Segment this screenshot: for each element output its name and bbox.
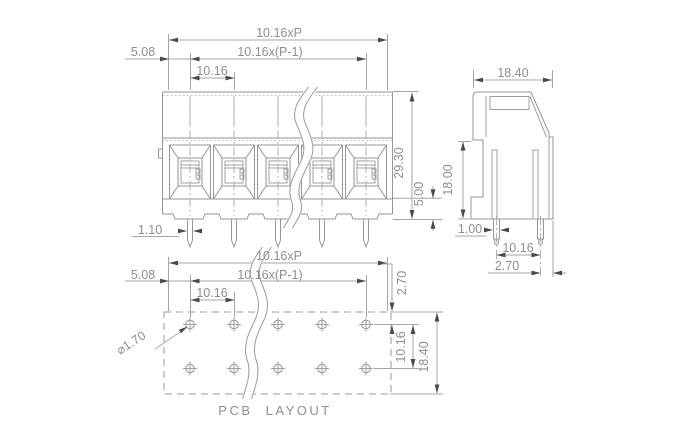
front-dim-pitch-label: 10.16	[196, 64, 227, 78]
side-dim-pin-spacing-label: 10.16	[502, 241, 533, 255]
pcb-dim-span-label: 10.16x(P-1)	[237, 268, 302, 282]
front-dim-height-label: 29.30	[392, 147, 406, 178]
front-view	[159, 92, 393, 247]
technical-drawing: 10.16xP 10.16x(P-1) 5.08 10.16 1.10 29.3…	[0, 0, 680, 440]
pin-channel	[492, 150, 497, 219]
wire-entry-opening	[490, 97, 529, 110]
drawing-canvas: 10.16xP 10.16x(P-1) 5.08 10.16 1.10 29.3…	[0, 0, 680, 440]
dim-side-body-height	[458, 142, 471, 220]
dim-pcb-total	[169, 257, 388, 311]
dim-pcb-hole-diameter	[155, 327, 188, 350]
pcb-dim-total-label: 10.16xP	[256, 249, 302, 263]
pcb-layout	[164, 312, 391, 394]
side-body-outline	[471, 92, 553, 219]
pcb-dim-hole-diameter-label: ⌀1.70	[114, 328, 148, 357]
front-dim-span-label: 10.16x(P-1)	[237, 45, 302, 59]
pcb-layout-caption: PCB LAYOUT	[218, 403, 331, 418]
side-dim-width-label: 18.40	[497, 66, 528, 80]
pcb-dim-pitch-label: 10.16	[196, 286, 227, 300]
pcb-dim-half-pitch-label: 5.08	[131, 268, 155, 282]
front-dim-total-label: 10.16xP	[256, 26, 302, 40]
pcb-dim-height-label: 18.40	[417, 341, 431, 372]
pcb-dim-row-spacing-label: 10.16	[394, 331, 408, 362]
front-pins	[188, 219, 369, 247]
dim-front-total	[169, 34, 388, 90]
side-latch-tab	[159, 149, 163, 158]
side-dim-body-height-label: 18.00	[441, 164, 455, 195]
pcb-holes	[183, 318, 373, 376]
side-dim-edge-offset-label: 2.70	[495, 259, 519, 273]
side-dim-pin-width-label: 1.00	[458, 222, 482, 236]
front-dim-base-height-label: 5.00	[412, 182, 426, 206]
front-body-outline	[159, 92, 393, 219]
pin-channel	[533, 150, 538, 219]
pcb-dim-edge-offset-label: 2.70	[395, 271, 409, 295]
terminal-cells	[170, 96, 387, 216]
front-dim-half-pitch-label: 5.08	[131, 45, 155, 59]
front-dim-pin-width-label: 1.10	[138, 223, 162, 237]
